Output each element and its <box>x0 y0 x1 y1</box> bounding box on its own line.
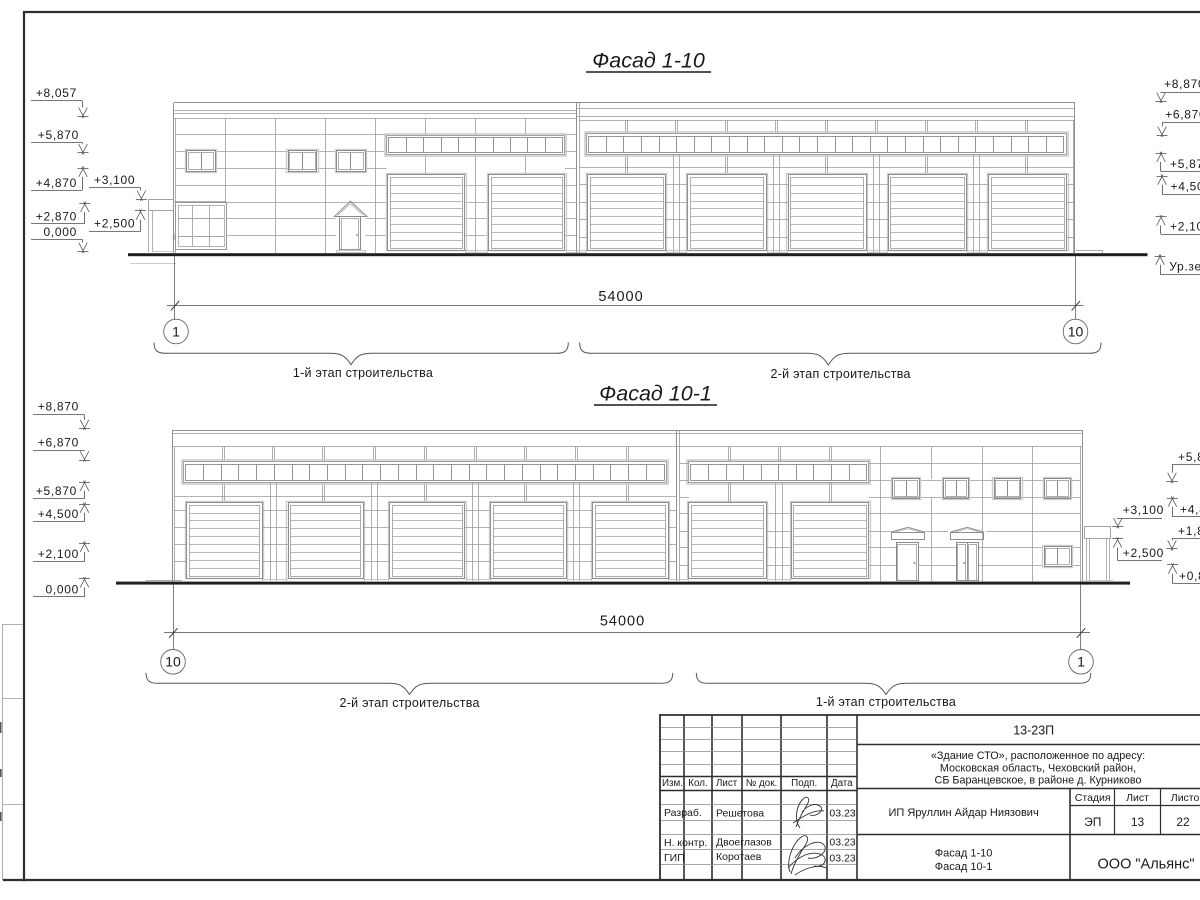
svg-text:СБ Баранцевское, в районе д. К: СБ Баранцевское, в районе д. Курниково <box>935 775 1142 787</box>
svg-text:Кол.: Кол. <box>688 778 707 789</box>
svg-text:Лист: Лист <box>1126 792 1149 804</box>
svg-text:Дата: Дата <box>831 778 853 789</box>
svg-text:№ док.: № док. <box>746 778 777 789</box>
svg-text:03.23: 03.23 <box>829 836 855 848</box>
svg-text:Листов: Листов <box>1171 792 1200 804</box>
svg-text:Подп.: Подп. <box>791 778 817 789</box>
svg-text:03.23: 03.23 <box>829 853 855 865</box>
svg-text:0,000: 0,000 <box>43 225 77 239</box>
svg-text:+6,870: +6,870 <box>1165 108 1200 122</box>
svg-text:2-й этап строительства: 2-й этап строительства <box>340 696 480 710</box>
svg-text:+5,870: +5,870 <box>1170 157 1200 171</box>
svg-text:Лист: Лист <box>716 778 738 789</box>
svg-text:1: 1 <box>1077 654 1085 670</box>
svg-text:+2,870: +2,870 <box>36 210 77 224</box>
svg-text:+5,870: +5,870 <box>36 484 77 498</box>
svg-text:Решетова: Решетова <box>716 808 764 820</box>
svg-text:1-й этап строительства: 1-й этап строительства <box>293 366 433 380</box>
svg-text:ЭП: ЭП <box>1084 815 1101 829</box>
svg-text:Фасад 1-10: Фасад 1-10 <box>592 49 705 73</box>
svg-text:Московская область, Чеховский: Московская область, Чеховский район, <box>940 763 1136 775</box>
svg-text:Н. контр.: Н. контр. <box>664 837 707 849</box>
svg-text:ГИП: ГИП <box>664 852 685 864</box>
svg-text:54000: 54000 <box>598 289 643 305</box>
svg-text:+2,500: +2,500 <box>1123 546 1164 560</box>
svg-text:+2,100: +2,100 <box>1170 220 1200 234</box>
svg-text:+6,870: +6,870 <box>38 436 79 450</box>
svg-text:+3,100: +3,100 <box>1123 503 1164 517</box>
svg-text:+4,500: +4,500 <box>38 507 79 521</box>
svg-text:ООО "Альянс": ООО "Альянс" <box>1098 857 1195 873</box>
svg-text:ИП Яруллин Айдар Ниязович: ИП Яруллин Айдар Ниязович <box>889 807 1039 819</box>
svg-text:03.23: 03.23 <box>829 808 855 820</box>
svg-text:1: 1 <box>172 323 180 339</box>
svg-text:+2,500: +2,500 <box>94 217 135 231</box>
svg-text:+0,800: +0,800 <box>1179 569 1200 583</box>
svg-text:10: 10 <box>1068 323 1084 339</box>
svg-text:+8,057: +8,057 <box>36 86 77 100</box>
svg-text:+8,870: +8,870 <box>38 400 79 414</box>
svg-text:Стадия: Стадия <box>1075 792 1111 804</box>
svg-text:Изм.: Изм. <box>662 778 683 789</box>
svg-text:Фасад 10-1: Фасад 10-1 <box>935 861 993 873</box>
svg-text:Коротаев: Коротаев <box>716 851 762 863</box>
svg-text:Ур.земли: Ур.земли <box>1169 260 1200 274</box>
svg-text:10: 10 <box>165 654 181 670</box>
svg-text:Фасад 10-1: Фасад 10-1 <box>599 382 712 406</box>
svg-text:2-й этап строительства: 2-й этап строительства <box>771 367 911 381</box>
svg-text:13-23П: 13-23П <box>1013 724 1054 738</box>
svg-text:Фасад 1-10: Фасад 1-10 <box>935 848 993 860</box>
svg-text:+4,870: +4,870 <box>1180 503 1200 517</box>
svg-text:1-й этап строительства: 1-й этап строительства <box>816 695 956 709</box>
svg-text:13: 13 <box>1131 815 1145 829</box>
svg-text:+3,100: +3,100 <box>94 173 135 187</box>
svg-text:+5,870: +5,870 <box>1178 450 1200 464</box>
svg-text:+2,100: +2,100 <box>38 547 79 561</box>
svg-text:Двоеглазов: Двоеглазов <box>716 836 772 848</box>
svg-text:+5,870: +5,870 <box>38 128 79 142</box>
svg-text:22: 22 <box>1176 815 1190 829</box>
svg-text:+8,870: +8,870 <box>1164 77 1200 91</box>
svg-text:0,000: 0,000 <box>45 582 79 596</box>
svg-text:+4,500: +4,500 <box>1171 180 1200 194</box>
svg-text:«Здание СТО», расположенное по: «Здание СТО», расположенное по адресу: <box>931 750 1145 762</box>
svg-text:+1,800: +1,800 <box>1178 524 1200 538</box>
svg-text:+4,870: +4,870 <box>36 176 77 190</box>
svg-text:Разраб.: Разраб. <box>664 807 702 819</box>
svg-text:54000: 54000 <box>600 613 645 629</box>
